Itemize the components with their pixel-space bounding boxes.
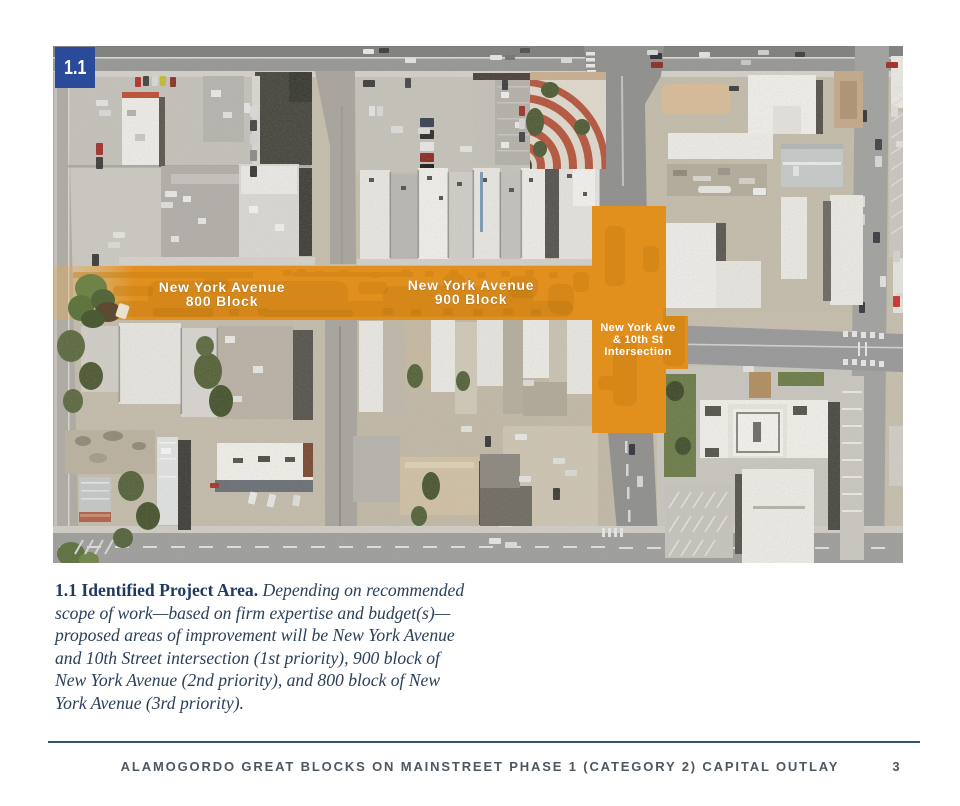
svg-text:& 10th St: & 10th St — [613, 334, 663, 346]
svg-text:Intersection: Intersection — [604, 346, 671, 358]
svg-text:900 Block: 900 Block — [435, 291, 508, 307]
svg-text:New York Ave: New York Ave — [600, 322, 675, 334]
svg-text:800 Block: 800 Block — [186, 293, 259, 309]
